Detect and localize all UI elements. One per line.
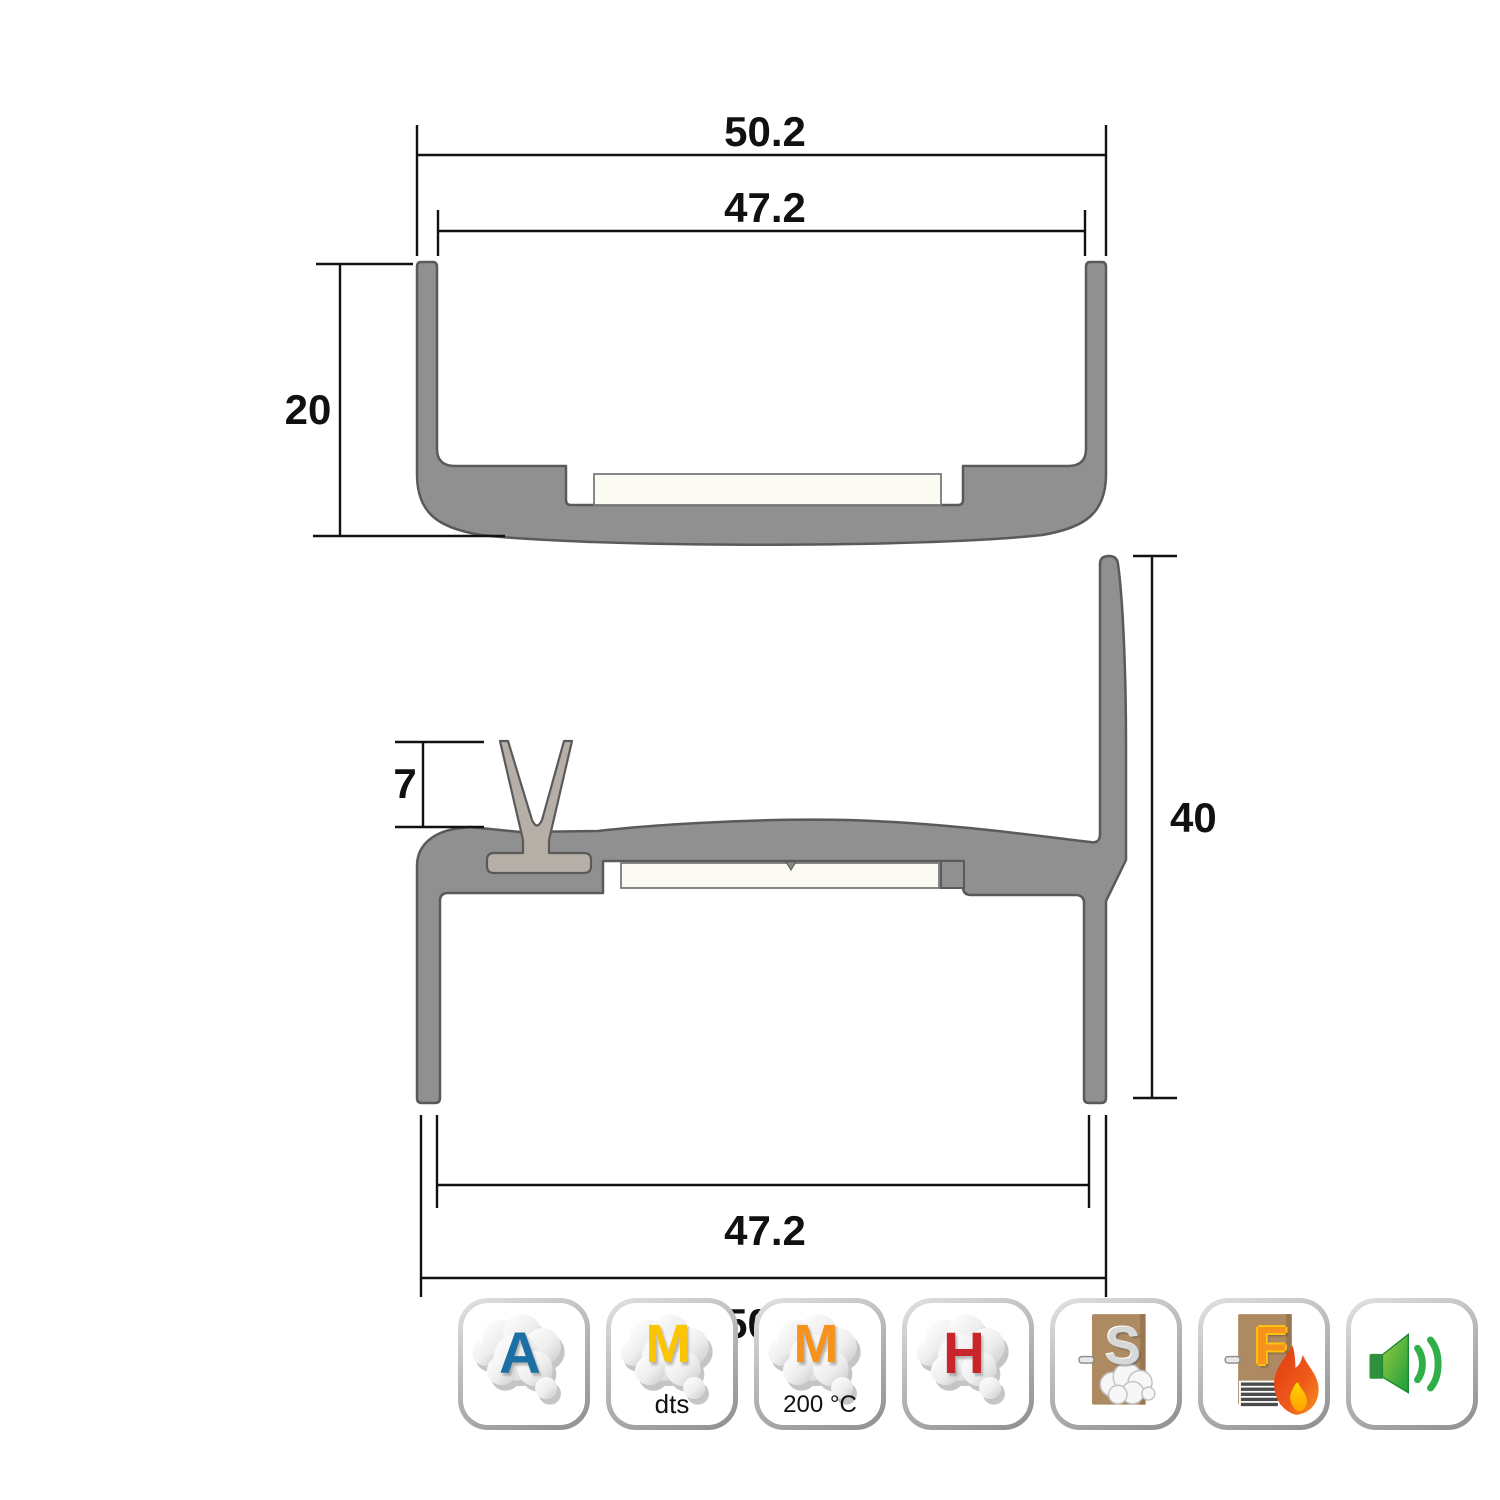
badge-smoke-door: S xyxy=(1050,1298,1182,1430)
badge-acoustic-a: A xyxy=(458,1298,590,1430)
louvre-vent xyxy=(1239,1381,1280,1407)
badge-letter-f: F xyxy=(1217,1319,1325,1373)
dimension-lines xyxy=(313,125,1177,1297)
dim-upstand-height: 40 xyxy=(1170,794,1217,841)
product-drawing-page: 50.2 47.2 20 7 40 47.2 50.2 xyxy=(0,0,1500,1500)
dim-top-outer-width: 50.2 xyxy=(724,108,806,155)
badge-letter-s: S xyxy=(1069,1319,1177,1373)
dim-top-inner-width: 47.2 xyxy=(724,184,806,231)
dim-top-height: 20 xyxy=(285,386,332,433)
dim-bottom-inner-width: 47.2 xyxy=(724,1207,806,1254)
badge-letter-a: A xyxy=(463,1325,577,1383)
badge-fire-door: F xyxy=(1198,1298,1330,1430)
bottom-profile-section xyxy=(417,556,1126,1103)
top-profile-section xyxy=(417,262,1106,545)
dim-seal-height: 7 xyxy=(393,760,416,807)
badge-caption-dts: dts xyxy=(611,1391,733,1417)
badge-caption-200c: 200 °C xyxy=(759,1393,881,1417)
badge-mechanical-temp: M 200 °C xyxy=(754,1298,886,1430)
technical-drawing: 50.2 47.2 20 7 40 47.2 50.2 xyxy=(0,0,1500,1500)
badge-speaker xyxy=(1346,1298,1478,1430)
badge-hygiene-h: H xyxy=(902,1298,1034,1430)
certification-icon-row: A M dts xyxy=(458,1298,1478,1430)
badge-letter-m: M xyxy=(611,1317,725,1371)
badge-letter-m: M xyxy=(759,1317,873,1371)
bottom-profile-insert-strip xyxy=(621,863,939,888)
badge-mechanical-dts: M dts xyxy=(606,1298,738,1430)
top-profile-insert-strip xyxy=(594,474,941,505)
seal-fin-gasket xyxy=(487,741,591,873)
speaker-icon xyxy=(1351,1303,1473,1425)
badge-letter-h: H xyxy=(907,1325,1021,1383)
insert-retaining-tab xyxy=(941,861,964,888)
